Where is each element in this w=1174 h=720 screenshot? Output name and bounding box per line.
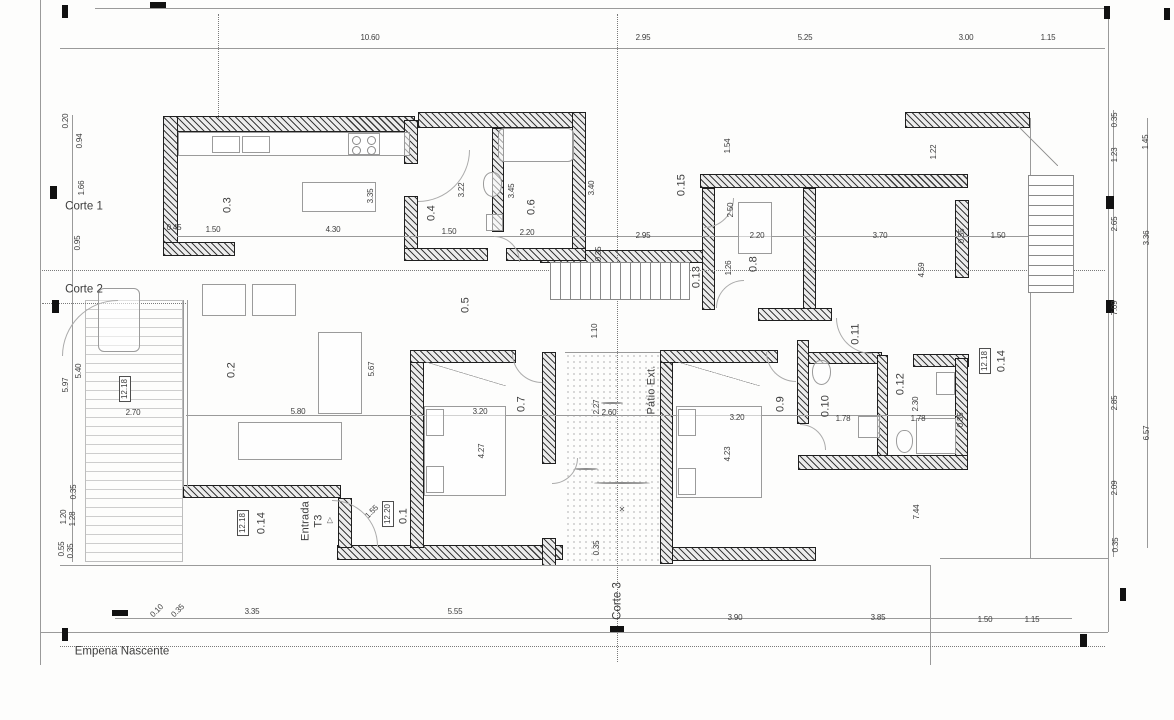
dimension-label: 2.70 (126, 409, 141, 417)
dimension-label: 5.97 (62, 378, 70, 393)
thin-line (1108, 8, 1109, 632)
dimension-label: 0.20 (62, 114, 70, 129)
section-marker (50, 186, 57, 199)
wall-segment (905, 112, 1030, 128)
dimension-label: 1.78 (836, 415, 851, 423)
dimension-label: 3.20 (730, 414, 745, 422)
dimension-label: 2.65 (1111, 217, 1119, 232)
dimension-label: 3.35 (367, 189, 375, 204)
dimension-label: 10.60 (360, 34, 379, 42)
dimension-label: 2.95 (636, 34, 651, 42)
section-marker (610, 626, 624, 632)
closet-diagonal (1018, 126, 1058, 166)
wall-segment (663, 547, 816, 561)
dimension-label: 4.30 (326, 226, 341, 234)
section-marker (150, 2, 166, 8)
level-ref-box: 12.20 (382, 501, 394, 527)
dimension-label: 1.10 (591, 324, 599, 339)
room-label: 0.12 (896, 373, 907, 395)
dimension-label: 1.55 (364, 504, 380, 520)
dimension-label: 5.80 (291, 408, 306, 416)
section-marker (1080, 634, 1087, 647)
floor-plan-sheet: 10.602.955.253.001.150.100.353.355.553.9… (0, 0, 1174, 720)
exterior-stairs (1028, 175, 1074, 293)
dimension-label: 3.90 (728, 614, 743, 622)
furniture-outline (426, 409, 444, 436)
dimension-label: 6.57 (1143, 426, 1151, 441)
dimension-label: 7.09 (1111, 301, 1119, 316)
furniture-outline (858, 416, 880, 438)
wall-segment (183, 485, 341, 498)
room-label: 0.8 (749, 256, 760, 272)
door-swing-arc (800, 424, 826, 450)
dimension-label: 4.59 (918, 263, 926, 278)
furniture-outline (242, 136, 270, 153)
section-marker (1106, 196, 1114, 209)
furniture-outline (498, 128, 574, 162)
wall-segment (163, 242, 235, 256)
dimension-label: 3.20 (473, 408, 488, 416)
wall-segment (542, 352, 556, 464)
wall-segment (163, 116, 415, 132)
dimension-label: 1.54 (724, 139, 732, 154)
thin-line (177, 236, 1030, 237)
dimension-label: 0.35 (67, 544, 75, 559)
furniture-outline (426, 466, 444, 493)
wall-segment (758, 308, 832, 321)
closet-diagonal (678, 362, 760, 386)
level-ref-box: 12.18 (119, 376, 131, 402)
wall-segment (404, 196, 418, 254)
dimension-label: 0.35 (1111, 113, 1119, 128)
wall-segment (404, 248, 488, 261)
furniture-outline (738, 202, 772, 254)
dimension-label: 0.94 (76, 134, 84, 149)
section-label: Empena Nascente (75, 646, 170, 658)
furniture-outline (202, 284, 246, 316)
furniture-outline (678, 409, 696, 436)
thin-line (60, 48, 1105, 49)
wall-segment (798, 455, 968, 470)
dimension-label: 0.10 (149, 603, 165, 619)
thin-line (187, 300, 188, 487)
furniture-outline (238, 422, 342, 460)
dimension-label: 0.55 (58, 542, 66, 557)
dimension-label: 5.67 (368, 362, 376, 377)
dimension-label: 4.27 (478, 444, 486, 459)
room-label: 0.3 (223, 197, 234, 213)
level-ref-box: 12.18 (237, 510, 249, 536)
room-label: Pátio Ext. (647, 365, 658, 414)
thin-line (40, 632, 1108, 633)
tree-symbol (594, 482, 650, 484)
dimension-label: 2.27 (593, 400, 601, 415)
wall-segment (337, 545, 563, 560)
section-marker (1104, 6, 1110, 19)
dimension-label: 3.85 (871, 614, 886, 622)
interior-stairs (550, 262, 690, 300)
stove-icon (348, 133, 380, 155)
furniture-outline (252, 284, 296, 316)
dimension-label: 5.55 (448, 608, 463, 616)
dimension-label: 2.20 (750, 232, 765, 240)
room-label: 0.1 (399, 508, 410, 524)
section-label: Corte 2 (65, 284, 103, 296)
dimension-label: 2.50 (727, 203, 735, 218)
symbol-icon: ✕ (619, 506, 626, 514)
dimension-label: 2.30 (912, 397, 920, 412)
wall-segment (410, 350, 424, 548)
room-label: 0.14 (257, 512, 268, 534)
wall-segment (700, 174, 968, 188)
furniture-outline (678, 468, 696, 495)
furniture-outline (916, 418, 956, 454)
section-marker (62, 5, 68, 18)
thin-line (95, 8, 1108, 9)
dimension-label: 1.28 (69, 512, 77, 527)
dimension-label: 3.00 (959, 34, 974, 42)
wall-segment (542, 538, 556, 566)
room-label: Entrada (301, 501, 312, 541)
dimension-label: 1.15 (1041, 34, 1056, 42)
dimension-label: 1.23 (1111, 148, 1119, 163)
dimension-label: 0.35 (170, 603, 186, 619)
thin-line (115, 618, 1072, 619)
section-marker (112, 610, 128, 616)
furniture-outline (486, 214, 503, 231)
furniture-outline (302, 182, 376, 212)
room-label: 0.4 (427, 205, 438, 221)
door-swing-arc (62, 300, 118, 356)
wall-segment (418, 112, 586, 128)
wall-segment (803, 188, 816, 316)
dimension-label: 7.44 (913, 505, 921, 520)
section-cut-line (60, 646, 1105, 647)
door-swing-arc (512, 353, 542, 383)
room-label: 0.13 (692, 266, 703, 288)
dimension-label: 3.40 (588, 181, 596, 196)
wall-segment (877, 355, 888, 467)
door-swing-arc (494, 236, 520, 262)
dimension-label: 0.35 (593, 541, 601, 556)
section-label: Corte 3 (612, 582, 624, 620)
furniture-outline (483, 172, 502, 197)
dimension-label: 2.20 (520, 229, 535, 237)
dimension-label: 2.60 (602, 409, 617, 417)
section-marker (1120, 588, 1126, 601)
symbol-icon: ▷ (326, 517, 334, 523)
dimension-label: 3.36 (1143, 231, 1151, 246)
furniture-outline (212, 136, 240, 153)
section-cut-line (617, 14, 618, 662)
dimension-label: 0.95 (74, 236, 82, 251)
section-marker (52, 300, 59, 313)
section-cut-line (218, 14, 219, 118)
dimension-label: 0.35 (70, 485, 78, 500)
room-label: 0.11 (851, 323, 862, 344)
tree-symbol (601, 402, 623, 404)
furniture-outline (318, 332, 362, 414)
section-label: Corte 1 (65, 201, 103, 213)
dimension-label: 1.66 (78, 181, 86, 196)
thin-line (40, 0, 41, 665)
dimension-label: 3.70 (873, 232, 888, 240)
thin-line (930, 565, 931, 665)
tree-symbol (574, 468, 598, 470)
thin-line (565, 352, 660, 353)
door-swing-arc (766, 352, 796, 382)
wall-segment (163, 116, 178, 256)
thin-line (1147, 118, 1148, 548)
dimension-label: 1.20 (60, 510, 68, 525)
dimension-label: 0.35 (595, 247, 603, 262)
dimension-label: 3.22 (458, 183, 466, 198)
dimension-label: 2.95 (636, 232, 651, 240)
room-label: 0.5 (461, 297, 472, 313)
furniture-outline (936, 372, 955, 395)
room-label: T3 (314, 514, 325, 527)
room-label: 0.7 (517, 396, 528, 412)
dimension-label: 1.26 (725, 261, 733, 276)
dimension-label: 1.50 (442, 228, 457, 236)
dimension-label: 1.50 (978, 616, 993, 624)
dimension-label: 3.35 (245, 608, 260, 616)
furniture-outline (896, 430, 913, 453)
room-label: 0.14 (997, 350, 1008, 372)
dimension-label: 2.09 (1111, 481, 1119, 496)
wall-segment (660, 352, 673, 564)
dimension-label: 0.35 (1112, 538, 1120, 553)
thin-line (940, 558, 1108, 559)
level-ref-box: 12.18 (979, 348, 991, 374)
room-label: 0.10 (821, 395, 832, 417)
dimension-label: 4.23 (724, 447, 732, 462)
room-label: 0.2 (227, 362, 238, 378)
dimension-label: 0.35 (958, 229, 966, 244)
dimension-label: 5.40 (75, 364, 83, 379)
section-marker (1164, 8, 1170, 20)
furniture-outline (812, 360, 831, 385)
room-label: 0.9 (776, 396, 787, 412)
dimension-label: 3.45 (508, 184, 516, 199)
dimension-label: 0.35 (957, 413, 965, 428)
dimension-label: 2.85 (1111, 396, 1119, 411)
thin-line (183, 300, 184, 487)
dimension-label: 1.15 (1025, 616, 1040, 624)
dimension-label: 1.50 (206, 226, 221, 234)
closet-diagonal (426, 362, 506, 386)
section-marker (62, 628, 68, 641)
room-label: 0.6 (527, 199, 538, 215)
dimension-label: 1.78 (911, 415, 926, 423)
dimension-label: 1.45 (1142, 135, 1150, 150)
dimension-label: 5.25 (798, 34, 813, 42)
thin-line (60, 565, 930, 566)
door-swing-arc (716, 280, 744, 308)
dimension-label: 1.22 (930, 145, 938, 160)
dimension-label: 0.45 (167, 224, 182, 232)
room-label: 0.15 (677, 174, 688, 196)
thin-line (565, 565, 660, 566)
dimension-label: 1.50 (991, 232, 1006, 240)
